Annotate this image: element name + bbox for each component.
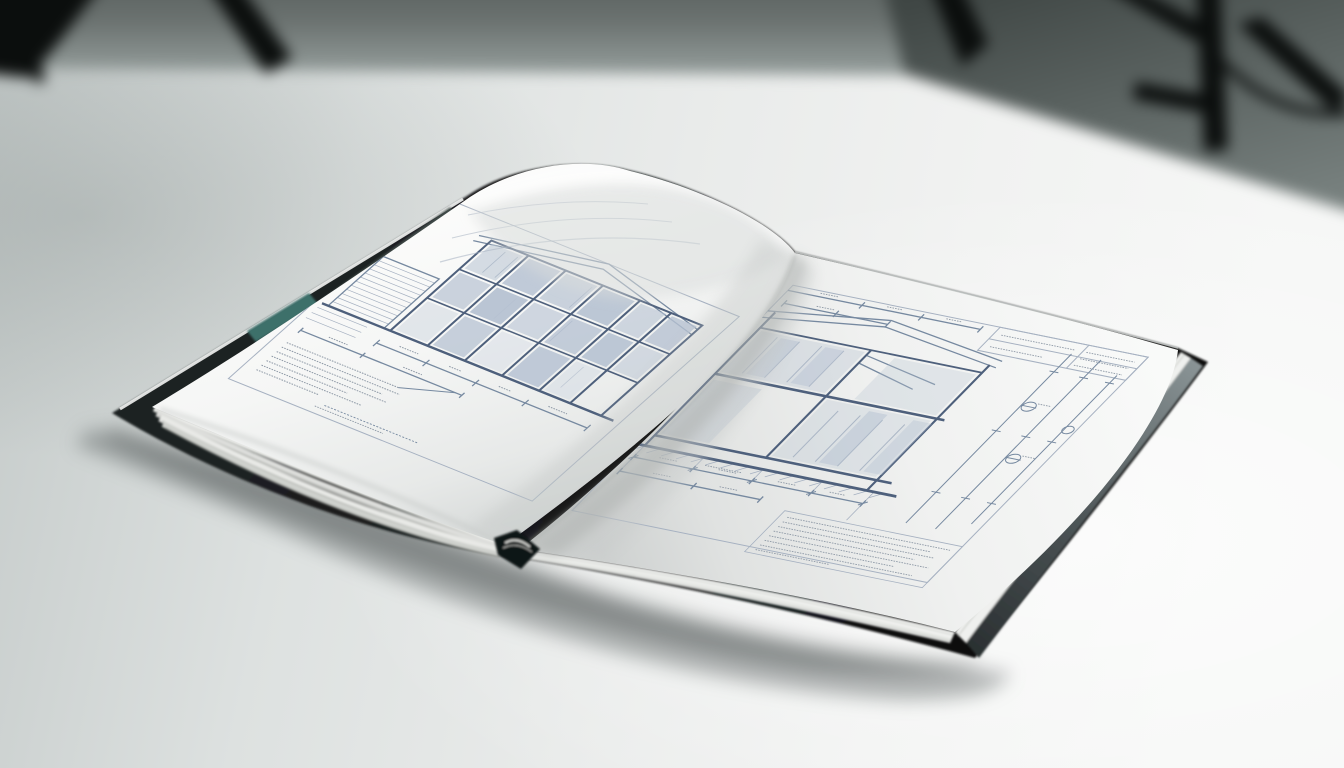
open-architecture-book [0, 0, 1344, 768]
studio-scene [0, 0, 1344, 768]
